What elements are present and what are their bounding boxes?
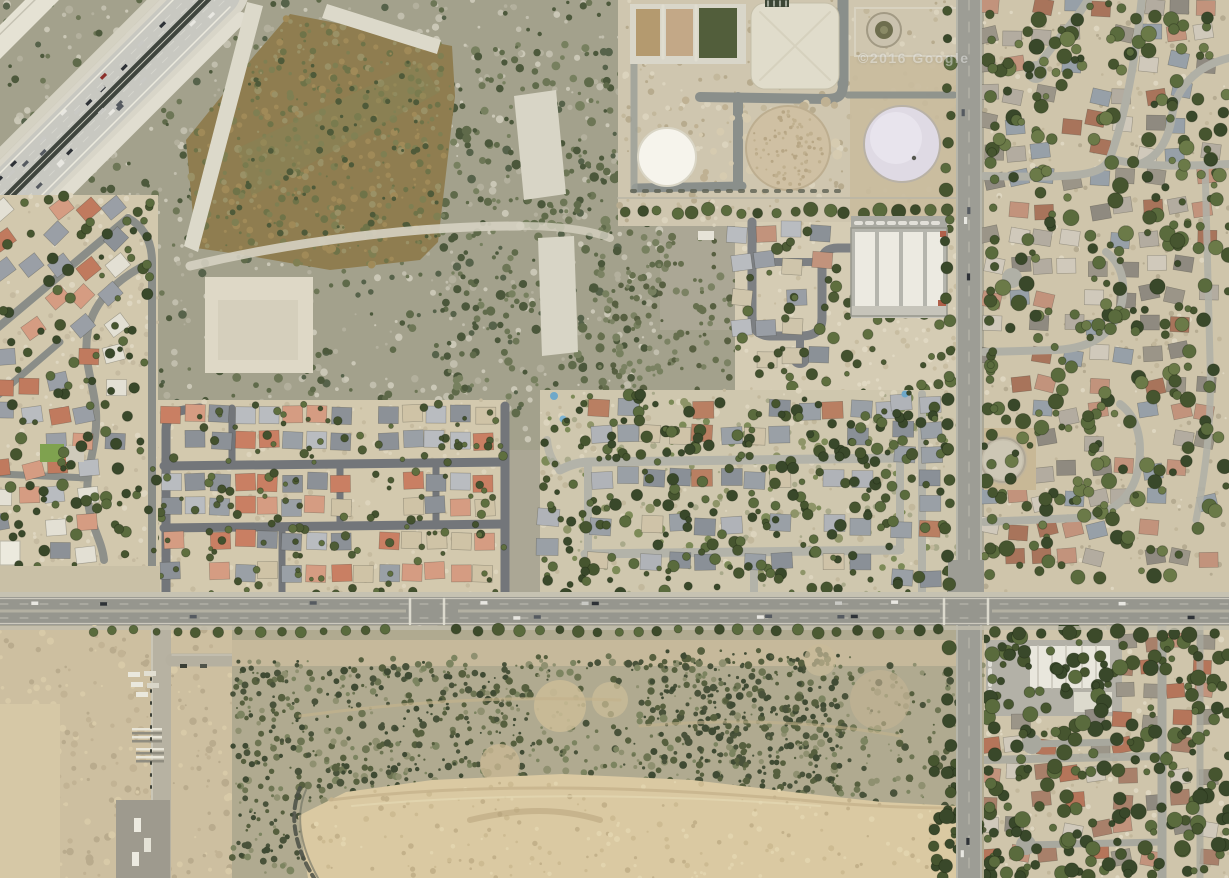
house <box>378 406 398 423</box>
house <box>1008 525 1028 541</box>
house <box>304 495 325 513</box>
house <box>450 405 470 422</box>
house <box>536 538 558 555</box>
house <box>822 401 844 419</box>
house <box>282 431 303 449</box>
vehicle <box>1188 616 1195 620</box>
house <box>307 472 328 490</box>
house <box>756 226 777 243</box>
trailer-row <box>132 728 162 731</box>
equipment-pad <box>116 800 170 878</box>
vehicle <box>964 217 967 224</box>
house <box>424 496 445 514</box>
settling-basin-green <box>699 8 737 58</box>
house <box>160 406 180 424</box>
house <box>769 514 791 532</box>
storage-roof <box>879 232 899 312</box>
parked-truck <box>136 692 148 697</box>
vehicle <box>961 850 964 857</box>
house <box>19 378 39 394</box>
house <box>1166 683 1185 699</box>
median-break <box>940 597 992 625</box>
house <box>257 531 278 549</box>
house <box>1059 229 1080 246</box>
house <box>1116 682 1135 697</box>
house <box>235 529 255 547</box>
vehicle <box>967 207 970 214</box>
trailer-row <box>132 736 162 739</box>
house <box>693 401 714 418</box>
house <box>450 473 470 490</box>
scrub-opening <box>804 644 836 676</box>
vehicle <box>891 600 898 604</box>
house <box>812 251 833 269</box>
house <box>1167 196 1188 214</box>
vehicle <box>966 838 969 845</box>
vehicle <box>513 616 520 620</box>
house <box>591 471 613 489</box>
house <box>0 380 14 396</box>
vehicle <box>851 615 858 619</box>
trailer-row <box>136 752 164 755</box>
house <box>753 250 775 268</box>
house <box>209 562 230 580</box>
vehicle <box>962 109 965 116</box>
house <box>185 430 205 447</box>
house <box>402 564 423 582</box>
house <box>769 426 790 444</box>
median-break <box>406 597 458 625</box>
imagery-watermark: ©2016 Google <box>858 50 988 70</box>
vehicle <box>835 601 842 605</box>
trailer-row <box>132 732 162 735</box>
house <box>920 495 941 511</box>
dirt-strip-west <box>0 566 160 594</box>
house <box>1090 344 1109 360</box>
house <box>782 258 803 275</box>
vehicle <box>765 615 772 619</box>
vehicle <box>100 602 107 606</box>
bottom-dirt-band <box>232 640 984 666</box>
house <box>1173 709 1193 725</box>
house <box>0 348 16 365</box>
graded-pad-inner <box>218 300 298 360</box>
house <box>235 473 256 491</box>
satellite-map-viewport: ©2016 Google <box>0 0 1229 878</box>
settling-basin-pink <box>666 9 693 56</box>
bottomleft-sand <box>0 704 60 878</box>
parked-truck <box>144 838 151 852</box>
house <box>744 472 766 490</box>
house <box>726 226 747 243</box>
reservoir-tan <box>746 106 830 190</box>
house <box>1139 519 1159 536</box>
arterial-south-walk <box>0 626 1229 630</box>
house <box>771 552 793 569</box>
settling-basin-tan <box>636 9 660 56</box>
house <box>850 518 871 535</box>
storage-tank-white <box>638 128 696 186</box>
house <box>235 431 256 449</box>
house <box>617 466 638 483</box>
storage-roof <box>855 232 875 312</box>
house <box>1030 142 1051 159</box>
plant-road <box>636 186 742 188</box>
house <box>424 561 445 579</box>
house <box>1199 552 1218 567</box>
house <box>1062 118 1082 135</box>
gravel-strip-east2 <box>538 236 578 356</box>
vehicle <box>310 601 317 605</box>
digester-core <box>880 26 888 34</box>
house <box>731 253 753 271</box>
vehicle <box>592 602 599 606</box>
house <box>257 497 277 514</box>
house <box>185 404 205 421</box>
vehicle <box>837 615 844 619</box>
house <box>426 406 446 423</box>
scrub-opening <box>850 670 910 730</box>
house <box>1146 115 1165 130</box>
house <box>49 406 71 425</box>
house <box>451 532 472 550</box>
house <box>731 288 753 306</box>
parked-truck <box>134 818 141 832</box>
house <box>781 221 801 237</box>
house <box>450 499 470 516</box>
house <box>1056 460 1075 475</box>
vehicle <box>757 615 764 619</box>
house <box>1057 258 1076 273</box>
parked-truck <box>128 672 140 677</box>
house <box>1009 202 1029 219</box>
house <box>1147 255 1166 270</box>
trailer-row <box>136 756 164 759</box>
house <box>810 225 831 242</box>
parked-truck <box>131 682 143 687</box>
car <box>180 664 187 668</box>
storage-roof <box>903 232 923 312</box>
house <box>403 497 424 515</box>
trailer-row <box>132 740 162 743</box>
plant-shed <box>698 231 714 240</box>
backyard-pool <box>550 392 558 400</box>
house <box>1143 346 1163 362</box>
vehicle <box>534 615 541 619</box>
house <box>185 473 206 491</box>
house <box>403 430 424 448</box>
house <box>694 518 716 536</box>
house <box>1034 466 1054 483</box>
vehicle <box>190 615 197 619</box>
aerial-imagery <box>0 0 1229 878</box>
parked-truck <box>144 671 156 676</box>
vehicle <box>480 601 487 605</box>
vehicle <box>1119 602 1126 606</box>
subdivision-b-street <box>164 462 505 466</box>
house <box>618 424 639 441</box>
house <box>75 546 97 564</box>
subdivision-b-street <box>164 524 505 528</box>
house <box>330 475 350 492</box>
house <box>235 407 255 424</box>
house <box>77 513 98 531</box>
house <box>50 542 70 558</box>
tank-vent <box>912 156 916 160</box>
house <box>890 394 912 412</box>
parked-truck <box>132 852 139 866</box>
house <box>353 565 373 582</box>
scrub-opening <box>534 680 586 732</box>
house <box>1031 229 1052 247</box>
house <box>588 399 610 417</box>
car <box>200 664 207 668</box>
vehicle <box>31 602 38 606</box>
vehicle <box>967 273 970 280</box>
house <box>1090 203 1111 221</box>
house <box>809 346 830 363</box>
house <box>0 459 10 477</box>
house <box>641 515 663 533</box>
house <box>1011 376 1032 393</box>
house <box>45 519 66 536</box>
house <box>451 565 471 582</box>
house <box>332 564 353 582</box>
house <box>1113 347 1134 365</box>
parked-truck <box>147 683 159 688</box>
house <box>755 320 776 337</box>
vehicle <box>582 602 589 606</box>
